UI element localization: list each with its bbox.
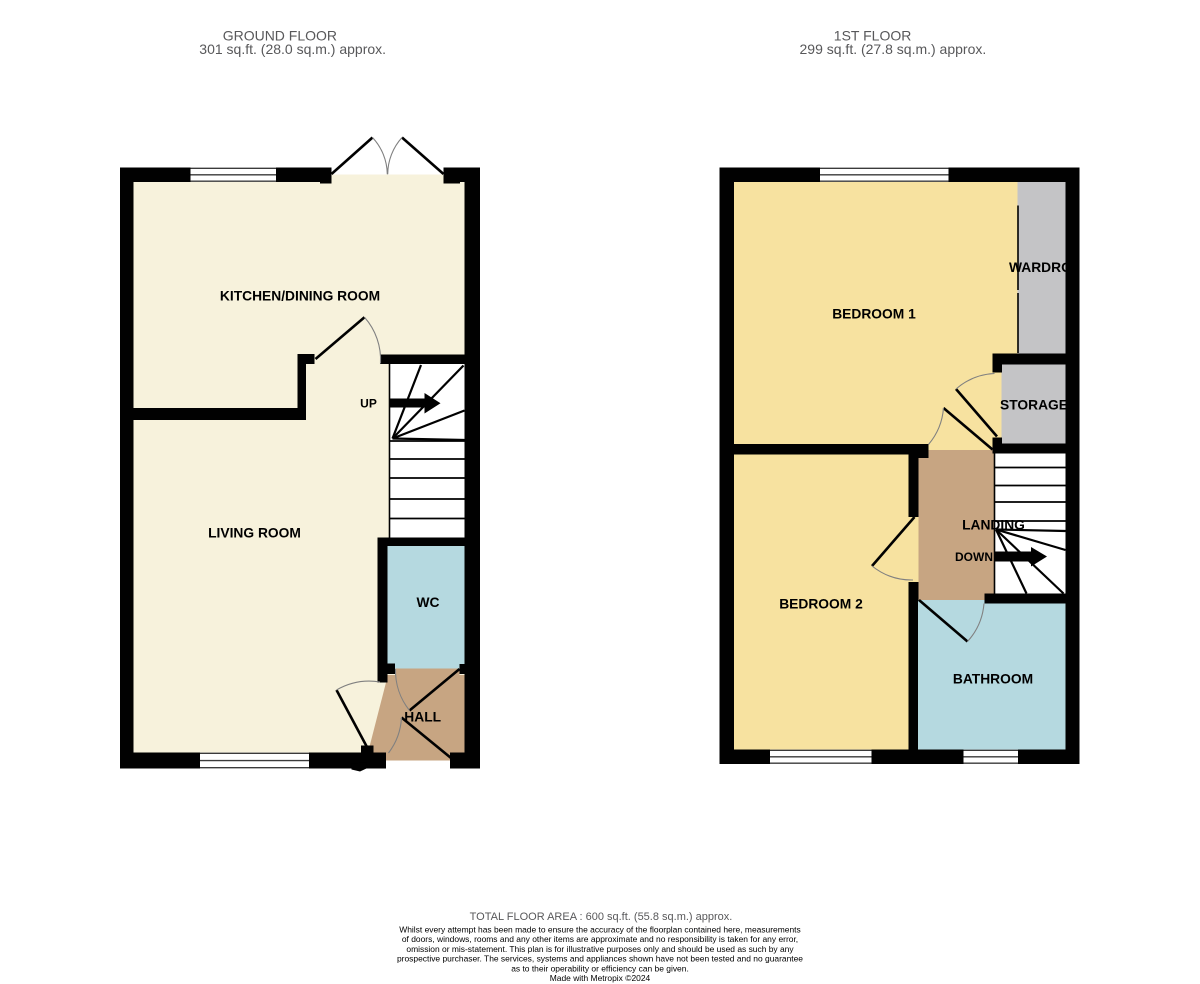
svg-text:Whilst every attempt has been: Whilst every attempt has been made to en… xyxy=(399,925,800,935)
svg-text:omission or mis-statement. Thi: omission or mis-statement. This plan is … xyxy=(406,944,794,954)
svg-text:prospective purchaser. The ser: prospective purchaser. The services, sys… xyxy=(397,954,803,964)
svg-text:299 sq.ft. (27.8 sq.m.) approx: 299 sq.ft. (27.8 sq.m.) approx. xyxy=(800,41,987,57)
svg-text:BATHROOM: BATHROOM xyxy=(953,672,1033,687)
svg-text:UP: UP xyxy=(360,397,377,411)
svg-text:WC: WC xyxy=(417,595,440,610)
svg-text:DOWN: DOWN xyxy=(955,550,993,564)
svg-text:BEDROOM 2: BEDROOM 2 xyxy=(779,596,863,611)
svg-text:301 sq.ft. (28.0 sq.m.) approx: 301 sq.ft. (28.0 sq.m.) approx. xyxy=(199,41,386,57)
svg-text:KITCHEN/DINING ROOM: KITCHEN/DINING ROOM xyxy=(220,289,380,304)
svg-text:as to their operability or eff: as to their operability or efficiency ca… xyxy=(511,963,689,973)
svg-text:Made with Metropix ©2024: Made with Metropix ©2024 xyxy=(550,973,651,983)
svg-text:BEDROOM 1: BEDROOM 1 xyxy=(832,306,916,321)
svg-text:of doors, windows, rooms and a: of doors, windows, rooms and any other i… xyxy=(402,934,798,944)
svg-text:LIVING ROOM: LIVING ROOM xyxy=(208,526,301,541)
svg-text:HALL: HALL xyxy=(404,709,441,724)
svg-text:LANDING: LANDING xyxy=(962,518,1025,533)
svg-text:TOTAL FLOOR AREA : 600 sq.ft.: TOTAL FLOOR AREA : 600 sq.ft. (55.8 sq.m… xyxy=(470,911,733,923)
svg-text:STORAGE: STORAGE xyxy=(1000,398,1068,413)
